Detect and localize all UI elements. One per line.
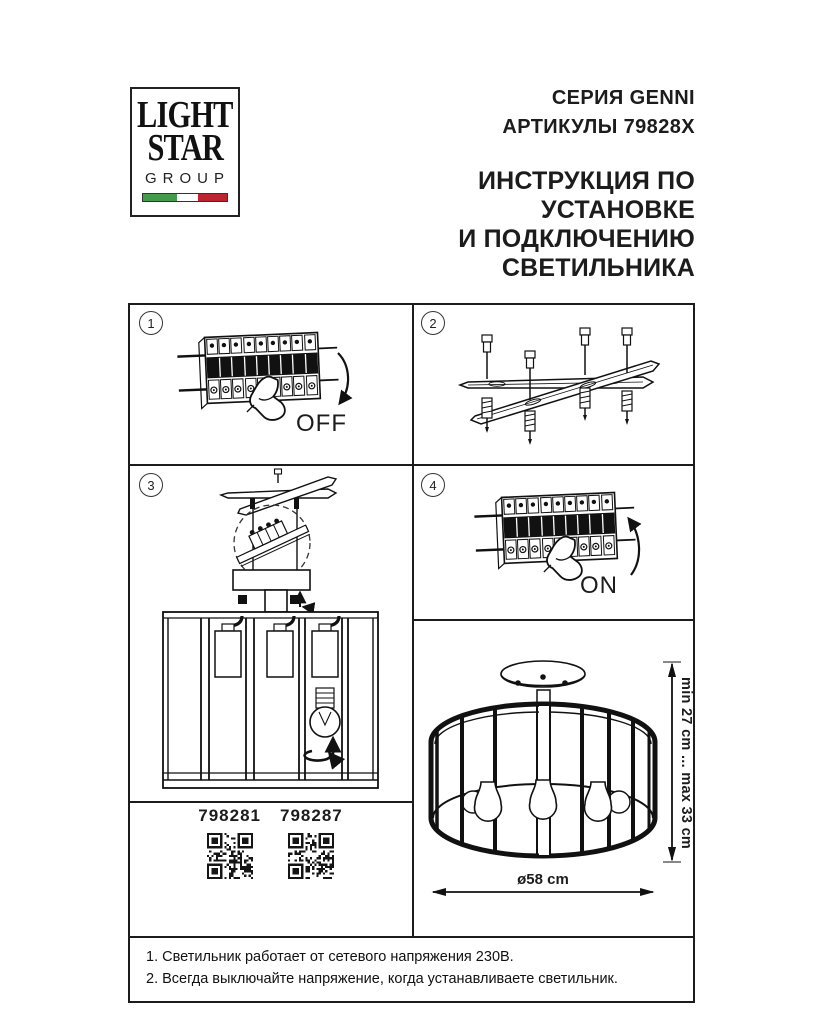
fixture-dimensions-illustration [413,620,695,937]
logo-word-star: STAR [147,132,223,165]
note-line-1: 1. Светильник работает от сетевого напря… [146,946,676,968]
on-label: ON [580,572,618,600]
canopy-plate-icon [233,570,310,612]
step1-breaker-off-illustration [128,303,413,465]
qr-item-right: 798287 [280,806,343,879]
lamp-sockets-icon [215,616,339,677]
qr-code-right [288,833,334,879]
articles-title: АРТИКУЛЫ 79828X [330,113,695,142]
height-dimension-label: min 27 cm ... max 33 cm [678,677,694,849]
notes-section: 1. Светильник работает от сетевого напря… [146,946,676,990]
article-code-left: 798281 [198,806,261,826]
bulbs-front [475,780,612,821]
ceiling-canopy-icon [501,661,585,706]
instruction-title-line2: И ПОДКЛЮЧЕНИЮ СВЕТИЛЬНИКА [330,225,695,283]
qr-item-left: 798281 [198,806,261,879]
arrow-down-icon [338,353,348,403]
drum-shade-icon [431,704,655,856]
ceiling-bracket-icon [221,469,336,515]
flag-white-segment [177,194,198,201]
header: СЕРИЯ GENNI АРТИКУЛЫ 79828X ИНСТРУКЦИЯ П… [330,84,695,283]
flag-green-segment [143,194,177,201]
step2-mounting-brackets-illustration [413,303,695,465]
qr-code-left [207,833,253,879]
diameter-dimension-label: ø58 cm [503,871,583,888]
note-line-2: 2. Всегда выключайте напряжение, когда у… [146,968,676,990]
italian-flag-stripe [142,193,228,202]
article-code-right: 798287 [280,806,343,826]
instruction-title-line1: ИНСТРУКЦИЯ ПО УСТАНОВКЕ [330,167,695,225]
instruction-sheet: LIGHT STAR GROUP СЕРИЯ GENNI АРТИКУЛЫ 79… [0,0,826,1024]
logo-word-group: GROUP [145,170,230,187]
series-title: СЕРИЯ GENNI [330,84,695,113]
off-label: OFF [296,410,347,438]
arrow-up-icon [629,519,639,575]
lightstar-logo: LIGHT STAR GROUP [130,87,240,217]
flag-red-segment [198,194,227,201]
step4-breaker-on-illustration [413,465,695,620]
qr-section: 798281 798287 [128,806,413,879]
step3-assembly-illustration [128,465,413,802]
